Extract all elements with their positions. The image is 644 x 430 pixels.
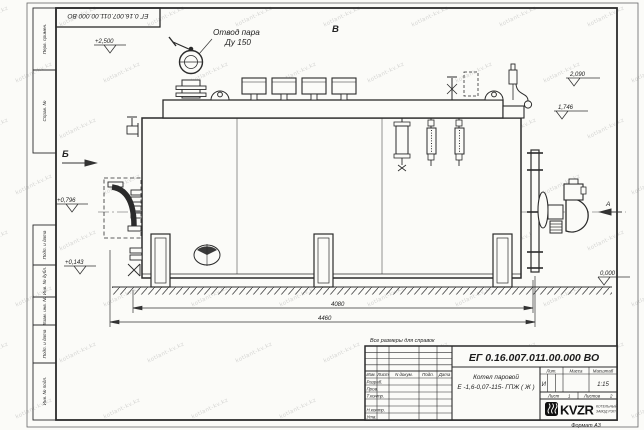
format-label: Формат А3 — [571, 423, 601, 429]
manhole — [194, 244, 220, 266]
burner — [527, 150, 588, 272]
margin-label-podp1: Подп. и дата — [42, 230, 47, 259]
ground-hatch — [112, 287, 612, 295]
view-b-label: Б — [62, 149, 69, 160]
masshtab-label: Масштаб — [593, 368, 614, 373]
margin-label-sprav: Справ. № — [42, 101, 47, 122]
margin-label-vzam: Взам. инв. № — [42, 297, 47, 325]
row-utv: Утв. — [367, 415, 377, 420]
elev-1746-label: 1,746 — [558, 105, 574, 111]
margin-label-inv-podl: Инв. № подл. — [42, 377, 47, 406]
product-name-line2: Е -1,6-0,07-115- ГПЖ ( Ж ) — [457, 384, 534, 391]
product-name-line1: Котел паровой — [473, 373, 519, 381]
lit-label: Лит. — [545, 368, 556, 373]
massa-label: Масса — [570, 368, 584, 373]
col-list: Лист — [376, 372, 389, 377]
steam-outlet-valve — [169, 37, 206, 98]
elev-2090-label: 2,090 — [569, 72, 586, 78]
view-v-label: В — [332, 24, 339, 35]
elev-0143-label: +0,143 — [65, 260, 84, 266]
corner-stamp: ЕГ 0.16.007.011.00.000 ВО — [56, 8, 160, 27]
col-izm: Изм. — [366, 372, 375, 377]
margin-label-inv-dubl: Инв. № дубл. — [42, 267, 47, 295]
sheets-label: Листов — [583, 394, 601, 399]
lit-value: И — [542, 382, 547, 388]
company-line1: КОТЕЛЬНЫЙ — [596, 405, 618, 409]
sheet-label: Лист — [547, 394, 560, 399]
scale-value: 1:15 — [597, 382, 609, 388]
drawing-canvas: Перв. примен. Справ. № Подп. и дата Инв.… — [0, 0, 644, 430]
col-ndokum: N докум. — [395, 372, 413, 377]
dim-4460-label: 4460 — [318, 316, 332, 322]
view-a-label: А — [605, 201, 611, 208]
row-tkontr: Т.контр. — [367, 394, 385, 399]
steam-callout-line1: Отвод пара — [213, 28, 260, 37]
logo-text: KVZR — [560, 403, 595, 418]
elev-2500-label: +2,500 — [95, 39, 114, 45]
title-block: ЕГ 0.16.007.011.00.000 ВО Котел паровой … — [365, 346, 618, 420]
steam-callout-line2: Ду 150 — [224, 38, 251, 47]
company-line2: ЗАВОД РЭП — [596, 410, 616, 414]
dim-4080-label: 4080 — [331, 302, 345, 308]
corner-stamp-number: ЕГ 0.16.007.011.00.000 ВО — [67, 12, 148, 19]
reference-note: Все размеры для справок — [370, 338, 435, 344]
row-razrab: Разраб. — [367, 380, 383, 385]
col-data: Дата — [438, 372, 451, 377]
margin-label-perv: Перв. примен. — [42, 24, 47, 55]
sheets-value: 2 — [609, 394, 613, 399]
steam-callout-leader — [199, 39, 212, 54]
elev-0796-label: +0,796 — [57, 198, 76, 204]
row-prov: Пров. — [367, 387, 379, 392]
col-podp: Подп. — [422, 372, 434, 377]
drawing-sheet: kotlant-kv.kzkotlant-kv.kzkotlant-kv.kzk… — [0, 0, 644, 430]
row-nkontr: Н.контр. — [367, 408, 386, 413]
margin-label-podp2: Подп. и дата — [42, 329, 47, 358]
safety-valves-group — [242, 78, 356, 100]
titleblock-doc-number: ЕГ 0.16.007.011.00.000 ВО — [469, 352, 599, 364]
elev-0000-label: 0,000 — [600, 271, 616, 277]
steam-drum — [163, 100, 524, 118]
